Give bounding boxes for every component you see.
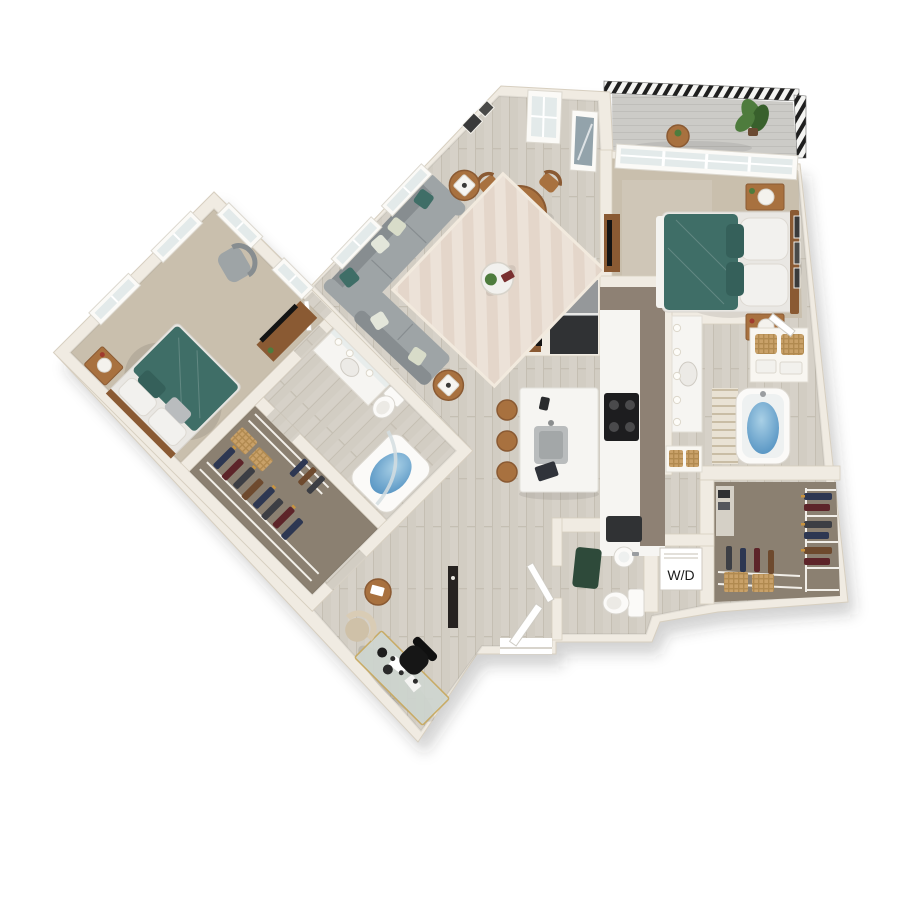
wall-powder-west-b	[552, 598, 562, 640]
counter-north-cabinets	[600, 287, 665, 312]
cooktop	[604, 393, 639, 441]
den-side-table	[365, 579, 391, 605]
wall-powder-west-a	[552, 518, 562, 566]
entry-console	[448, 566, 458, 628]
towels	[756, 360, 776, 373]
washer-dryer-label: W/D	[667, 567, 694, 583]
pillow	[740, 264, 788, 306]
lamp	[758, 189, 774, 205]
shower-curtain	[712, 388, 738, 464]
dishwasher	[606, 516, 642, 542]
teal-pillow	[726, 224, 744, 258]
island-faucet	[548, 420, 554, 426]
bedroom-tv	[607, 220, 612, 266]
bedroom-wall-art	[794, 216, 800, 288]
nightstand-north	[746, 184, 784, 210]
island-sink-basin	[539, 431, 563, 459]
bathtub	[736, 388, 790, 464]
closet-basket	[752, 574, 774, 592]
wall-bath-closet	[700, 466, 840, 480]
basket	[781, 334, 804, 355]
basket	[686, 450, 699, 467]
front-door-opening	[500, 638, 552, 654]
hall-shelf	[666, 446, 702, 472]
floor-plan-svg: W/D	[0, 0, 900, 900]
tub-faucet	[760, 391, 766, 397]
basket	[755, 334, 777, 354]
laundry-closet: W/D	[660, 548, 702, 590]
basket	[669, 450, 683, 467]
teal-pillow	[726, 262, 744, 296]
island-stools	[497, 400, 517, 482]
towels	[780, 362, 802, 374]
vanity-sink	[679, 362, 697, 386]
closet-basket	[724, 572, 748, 592]
floor-plan-image: W/D	[0, 0, 900, 900]
tub-water	[747, 402, 779, 454]
bath-mat	[572, 547, 602, 589]
linen-shelves	[750, 328, 808, 382]
counter-east-cabinets	[640, 310, 665, 550]
west-shelf-items	[716, 486, 734, 536]
pillow	[740, 218, 788, 260]
balcony-table	[667, 125, 689, 147]
